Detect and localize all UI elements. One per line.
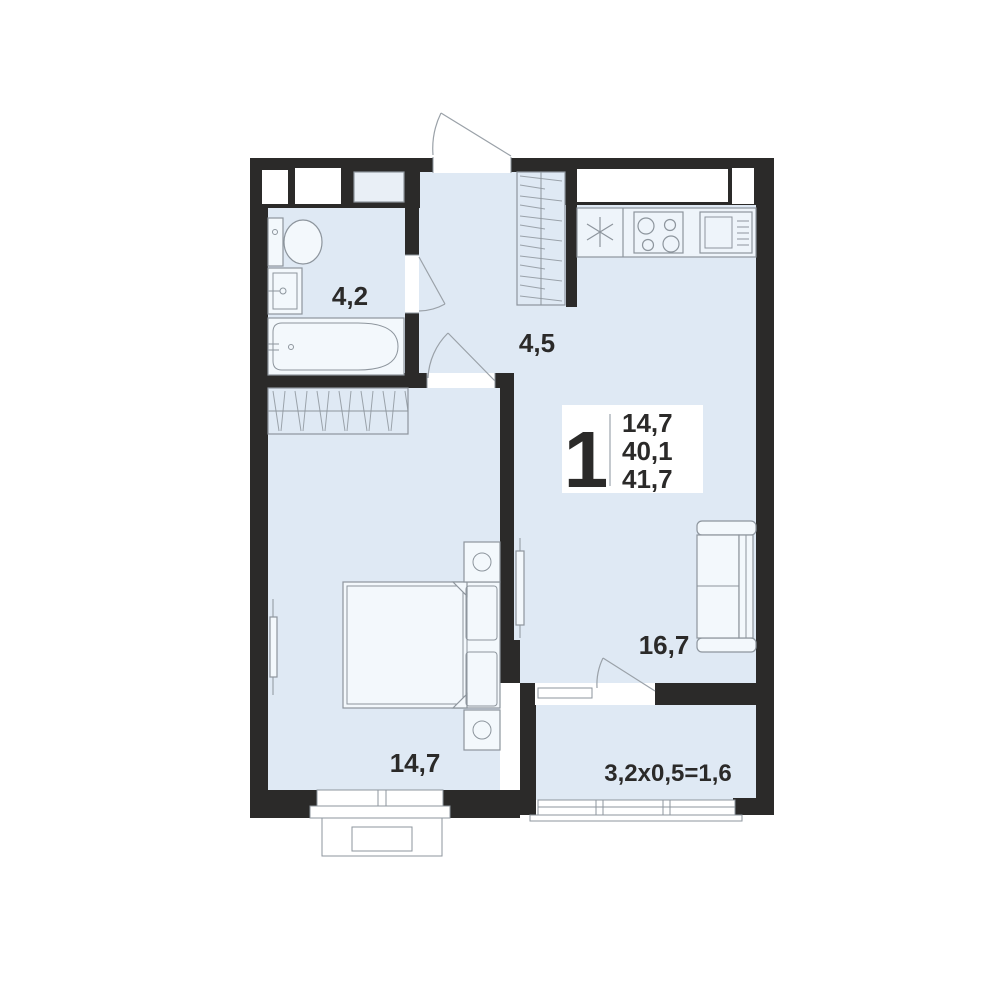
kitchen-window bbox=[577, 169, 728, 202]
wardrobe-bedroom-icon bbox=[268, 388, 408, 434]
total-area-value: 40,1 bbox=[622, 436, 673, 466]
wall-bedroom-living bbox=[500, 373, 514, 640]
wall-bathroom-right-lower bbox=[405, 313, 419, 373]
rooms-count: 1 bbox=[564, 415, 609, 504]
wall-hallway-kitchen-divider bbox=[566, 205, 577, 307]
wardrobe-hallway-icon bbox=[517, 172, 565, 305]
bed-icon bbox=[343, 582, 500, 708]
wall-left bbox=[250, 158, 268, 818]
floor-plan-page: 4,2 4,5 14,7 16,7 3,2x0,5=1,6 1 14,7 40,… bbox=[0, 0, 1000, 1000]
living-balcony-window bbox=[535, 683, 595, 705]
floor-plan-svg: 4,2 4,5 14,7 16,7 3,2x0,5=1,6 1 14,7 40,… bbox=[0, 0, 1000, 1000]
living-area-value: 14,7 bbox=[622, 408, 673, 438]
total-area-with-balcony-value: 41,7 bbox=[622, 464, 673, 494]
wall-balcony-bottom-right bbox=[733, 798, 756, 815]
wall-right bbox=[756, 158, 774, 815]
ac-basket bbox=[322, 818, 442, 856]
vent-shaft-1 bbox=[262, 170, 288, 204]
bathroom-area-label: 4,2 bbox=[332, 281, 368, 311]
kitchen-living-area-label: 16,7 bbox=[639, 630, 690, 660]
balcony-glazing bbox=[530, 800, 742, 821]
balcony-sill bbox=[530, 815, 742, 821]
bedroom-window bbox=[310, 790, 450, 856]
nightstand-2 bbox=[464, 710, 500, 750]
bathtub-icon bbox=[268, 318, 404, 375]
wall-bedroom-living-step bbox=[500, 640, 520, 683]
sofa-icon bbox=[697, 521, 756, 652]
toilet-icon bbox=[268, 218, 322, 266]
vent-shaft-2 bbox=[295, 168, 341, 204]
kitchen-corner-shaft bbox=[732, 168, 754, 204]
duct-box bbox=[354, 172, 404, 202]
wall-living-balcony-left bbox=[520, 683, 535, 705]
radiator-living-icon bbox=[516, 538, 524, 638]
wall-bathroom-right-upper bbox=[405, 172, 419, 255]
bedroom-window-sill bbox=[310, 806, 450, 818]
unit-info-badge: 1 14,7 40,1 41,7 bbox=[562, 405, 703, 504]
fridge-icon bbox=[700, 212, 752, 253]
hallway-area-label: 4,5 bbox=[519, 328, 555, 358]
wall-living-balcony-right bbox=[655, 683, 774, 705]
bedroom-area-label: 14,7 bbox=[390, 748, 441, 778]
balcony-area-label: 3,2x0,5=1,6 bbox=[604, 760, 731, 787]
entrance-door-icon bbox=[433, 113, 511, 173]
sink-icon bbox=[268, 268, 302, 314]
nightstand-1 bbox=[464, 542, 500, 582]
